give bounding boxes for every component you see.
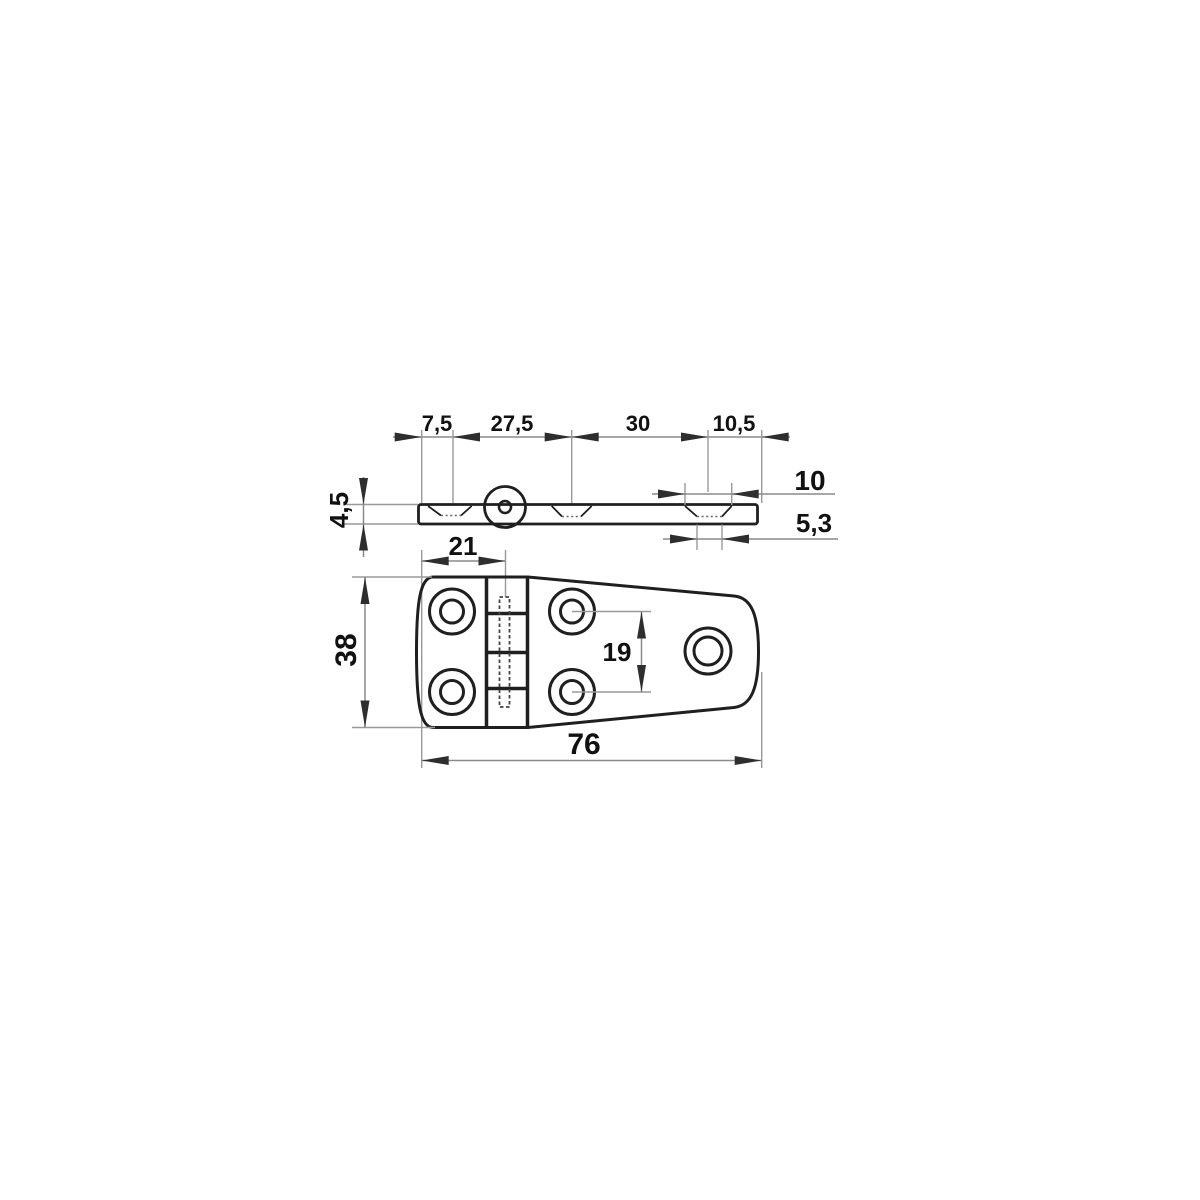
dim-label-5-3: 5,3 [796, 508, 832, 538]
hole-bore [441, 600, 464, 623]
arrowhead [637, 612, 646, 639]
screw-hole-bottom-left [430, 670, 475, 715]
arrowhead [658, 490, 685, 499]
hinge-barrel [487, 577, 528, 728]
arrowhead [637, 665, 646, 692]
chain-dimension: 7,5 27,5 30 10,5 [393, 411, 790, 504]
arrowhead [422, 557, 449, 566]
hole-spacing-dimension: 19 [572, 612, 651, 693]
side-view: 7,5 27,5 30 10,5 [324, 411, 838, 557]
dim-label-30: 30 [626, 411, 650, 436]
arrowhead [422, 756, 449, 765]
arrowhead [762, 433, 789, 442]
countersink-slope [552, 506, 592, 517]
arrowhead [361, 577, 370, 604]
dim-label-38: 38 [330, 633, 363, 666]
arrowhead [681, 433, 708, 442]
dim-label-10: 10 [794, 465, 825, 496]
arrowhead [722, 535, 749, 544]
arrowhead [670, 535, 697, 544]
arrowhead [395, 433, 422, 442]
dim-label-4-5: 4,5 [324, 492, 354, 528]
countersink-left [428, 506, 472, 516]
arrowhead [479, 557, 506, 566]
dim-label-7-5: 7,5 [422, 411, 453, 436]
hinge-technical-drawing: 7,5 27,5 30 10,5 [0, 0, 1200, 1200]
arrowhead [732, 490, 759, 499]
arrowhead [453, 433, 480, 442]
hole-bore [441, 681, 464, 704]
dim-label-21: 21 [449, 531, 478, 561]
arrowhead [359, 478, 368, 505]
countersink-middle [552, 506, 592, 517]
dim-label-19: 19 [603, 637, 632, 667]
leaf-width-dimension: 21 [422, 531, 506, 768]
countersink-slope [428, 506, 472, 516]
countersink-slope [685, 506, 732, 517]
dim-label-27-5: 27,5 [491, 411, 534, 436]
drawing-canvas: 7,5 27,5 30 10,5 [0, 0, 1200, 1200]
arrowhead [572, 433, 599, 442]
hole-countersink-ring [685, 628, 731, 674]
plan-view: 21 [330, 531, 762, 768]
thickness-dimension: 4,5 [324, 477, 418, 557]
screw-hole-right [685, 628, 731, 674]
knuckle-circle [485, 487, 526, 528]
pin-circle [499, 501, 511, 513]
countersink-right [685, 506, 732, 517]
hole-countersink-ring [430, 589, 475, 634]
arrowhead [359, 524, 368, 551]
hole-bore [694, 637, 722, 665]
hole-width-dimension: 5,3 [663, 508, 838, 550]
arrowhead [735, 756, 762, 765]
arrowhead [545, 433, 572, 442]
screw-hole-top-left [430, 589, 475, 634]
arrowhead [361, 701, 370, 728]
dim-label-10-5: 10,5 [713, 411, 756, 436]
hole-countersink-ring [430, 670, 475, 715]
dim-label-76: 76 [567, 728, 600, 761]
plate-outline [417, 577, 759, 728]
countersink-width-dimension: 10 [652, 465, 835, 505]
